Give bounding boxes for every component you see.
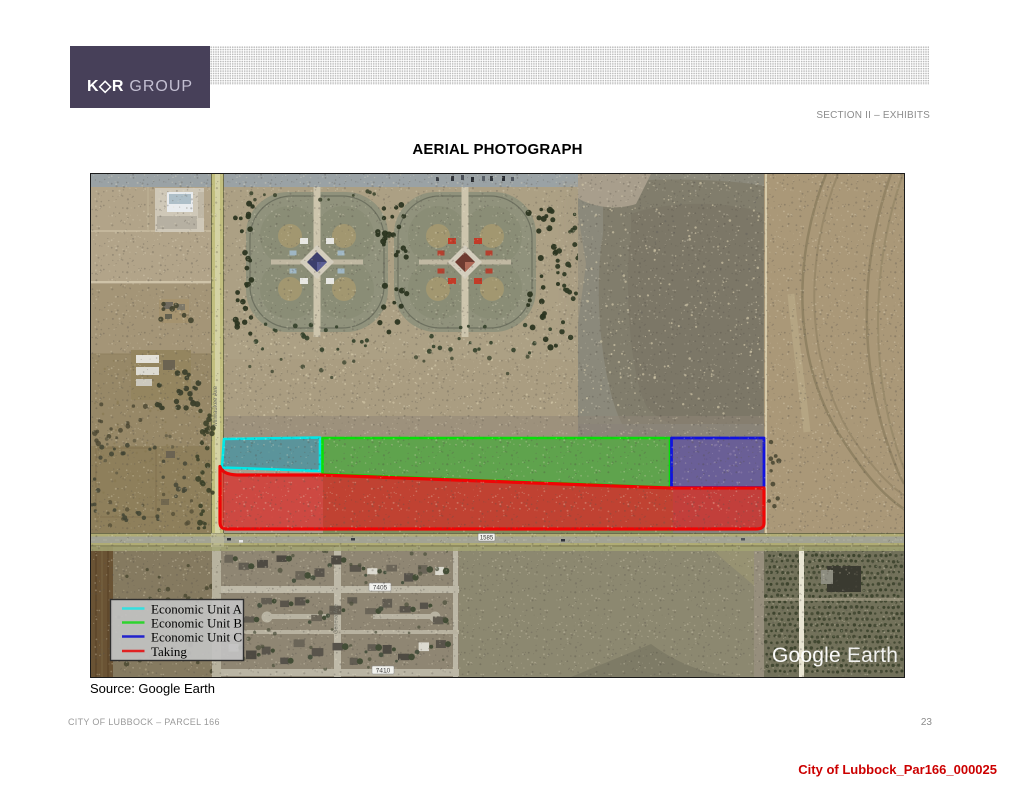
svg-text:Google Earth: Google Earth xyxy=(772,644,898,667)
svg-text:Taking: Taking xyxy=(151,644,187,659)
svg-text:Economic Unit A: Economic Unit A xyxy=(151,602,243,617)
svg-text:Economic Unit C: Economic Unit C xyxy=(151,630,242,645)
svg-text:1585: 1585 xyxy=(480,536,494,542)
svg-text:Economic Unit B: Economic Unit B xyxy=(151,616,242,631)
